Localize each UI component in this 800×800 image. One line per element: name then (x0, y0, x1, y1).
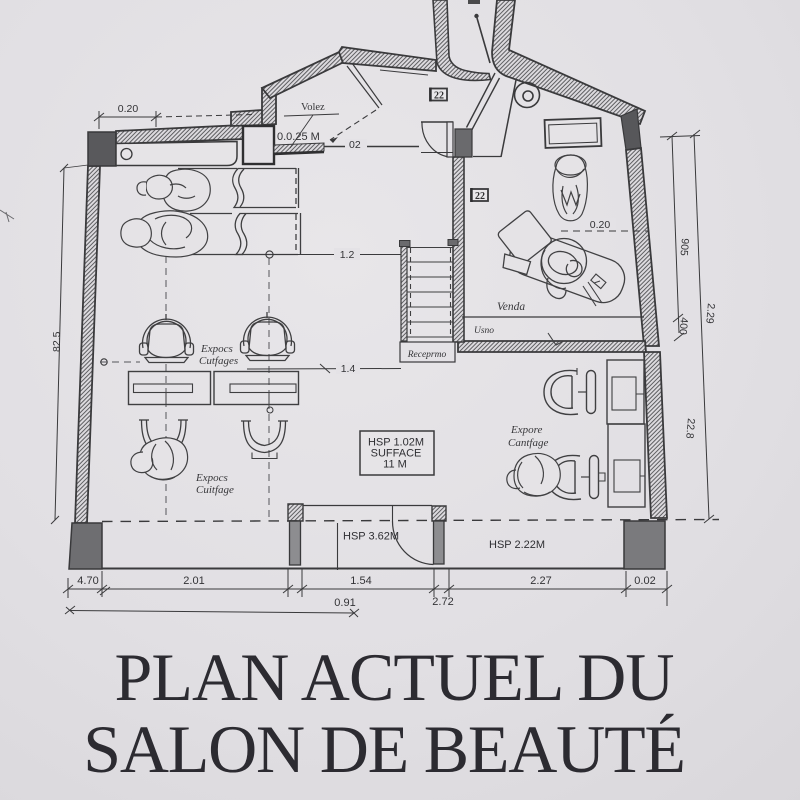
svg-text:0.20: 0.20 (590, 219, 611, 231)
svg-text:11 M: 11 M (383, 459, 407, 471)
svg-text:82.5: 82.5 (51, 331, 63, 352)
svg-text:2.29: 2.29 (703, 303, 717, 325)
svg-text:2.27: 2.27 (530, 575, 551, 587)
svg-text:1.4: 1.4 (341, 363, 356, 375)
svg-text:PLAN ACTUEL DU: PLAN ACTUEL DU (114, 639, 673, 715)
svg-text:2.01: 2.01 (183, 575, 204, 587)
svg-text:0.20: 0.20 (118, 103, 139, 115)
svg-text:Cutfages: Cutfages (199, 355, 238, 367)
svg-text:Cuitfage: Cuitfage (196, 484, 234, 496)
svg-text:4.70: 4.70 (77, 575, 98, 587)
svg-text:Receprmo: Receprmo (407, 350, 447, 360)
svg-text:0.91: 0.91 (334, 597, 355, 609)
svg-text:22: 22 (434, 91, 444, 102)
svg-text:Cantfage: Cantfage (508, 437, 548, 449)
svg-text:Expocs: Expocs (195, 472, 228, 484)
svg-text:HSP 2.22M: HSP 2.22M (489, 539, 545, 551)
svg-text:1.54: 1.54 (350, 575, 371, 587)
svg-text:2.72: 2.72 (432, 596, 453, 608)
svg-text:22.8: 22.8 (683, 418, 697, 440)
svg-text:0.02: 0.02 (634, 575, 655, 587)
svg-text:SALON DE BEAUTÉ: SALON DE BEAUTÉ (83, 711, 685, 787)
svg-text:02: 02 (349, 139, 361, 151)
svg-text:0.0.25 M: 0.0.25 M (277, 131, 320, 143)
svg-text:Venda: Venda (497, 301, 525, 313)
svg-text:Expore: Expore (510, 424, 542, 436)
svg-text:HSP 3.62M: HSP 3.62M (343, 531, 399, 543)
svg-text:400: 400 (676, 317, 689, 336)
svg-text:1.2: 1.2 (340, 249, 355, 261)
svg-text:Usno: Usno (474, 326, 494, 336)
svg-text:Expocs: Expocs (200, 343, 233, 355)
svg-text:905: 905 (677, 238, 690, 257)
svg-text:22: 22 (475, 191, 485, 202)
svg-text:Volez: Volez (301, 102, 325, 113)
